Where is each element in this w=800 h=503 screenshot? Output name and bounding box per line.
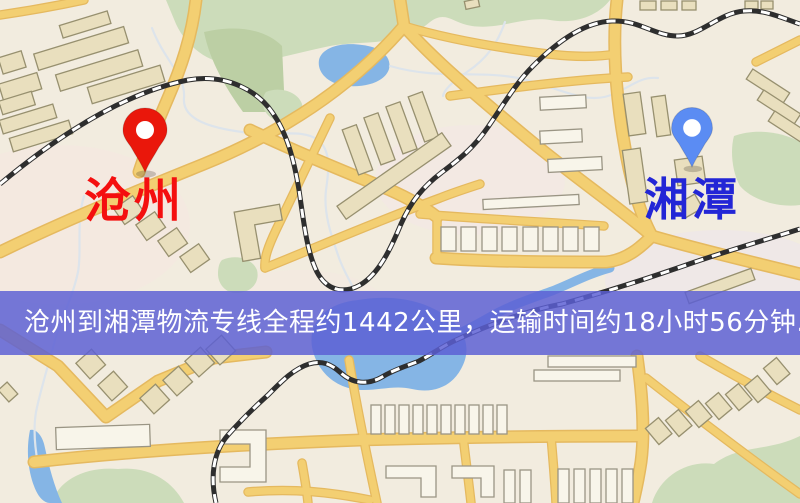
route-caption-banner: 沧州到湘潭物流专线全程约1442公里，运输时间约18小时56分钟.: [0, 291, 800, 355]
destination-city-label: 湘潭: [644, 177, 740, 222]
origin-city-label: 沧州: [84, 178, 184, 225]
caption-text: 沧州到湘潭物流专线全程约1442公里，运输时间约18小时56分钟.: [0, 291, 800, 355]
route-map: 沧州 湘潭 沧州到湘潭物流专线全程约1442公里，运输时间约18小时56分钟.: [0, 0, 800, 503]
map-canvas[interactable]: [0, 0, 800, 503]
